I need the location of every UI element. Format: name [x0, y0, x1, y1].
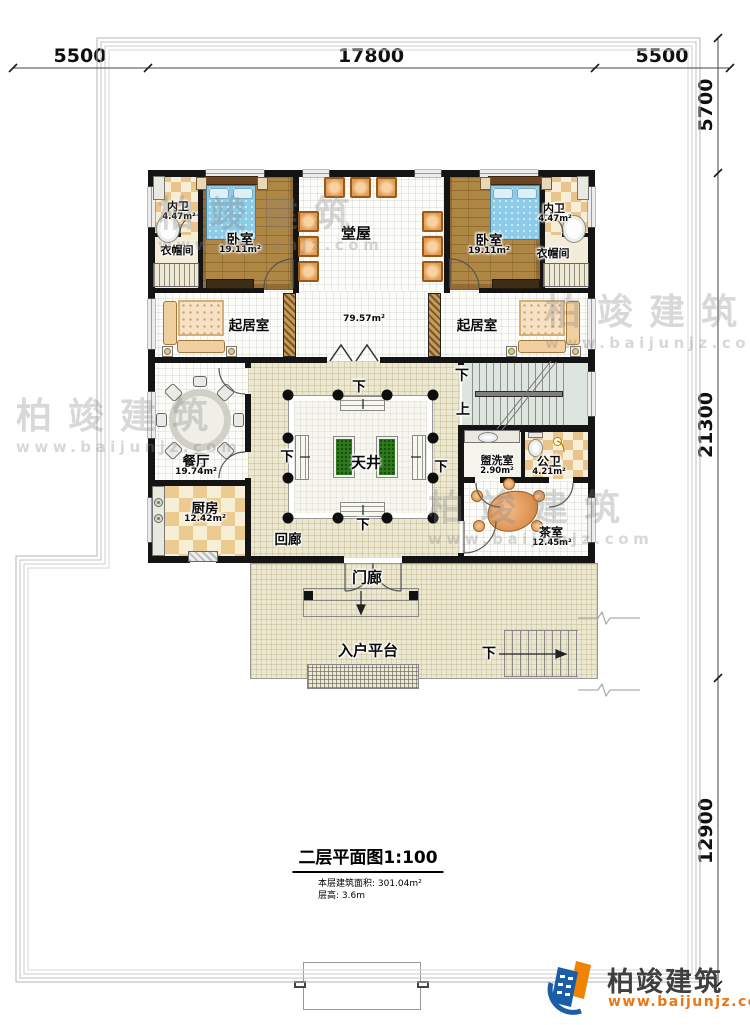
area-label-toilet: 4.21m²: [532, 467, 566, 477]
armchair: [422, 236, 443, 257]
lamp-table: [226, 346, 237, 357]
wardrobe: [543, 263, 589, 287]
wall: [148, 556, 190, 563]
stair-label-up-main: 上: [456, 399, 470, 419]
window: [588, 372, 595, 416]
column: [333, 513, 344, 524]
wall: [402, 556, 595, 563]
timber-column: [283, 293, 296, 357]
dim-right-middle: 21300: [695, 392, 717, 458]
window: [588, 498, 595, 542]
sink: [478, 432, 498, 443]
floor-plan-canvas: 5500 17800 5500 5700 21300 12900: [0, 0, 750, 1025]
wall: [245, 478, 251, 563]
stair-label-down-courtyard-left: 下: [280, 445, 294, 465]
gate: [303, 962, 421, 1010]
porch-steps: [303, 588, 419, 617]
dim-right-lower: 12900: [695, 798, 717, 864]
dim-top-left: 5500: [54, 45, 107, 67]
area-label-dining: 19.74m²: [175, 467, 217, 477]
vanity: [153, 176, 165, 200]
gate-hinge: [417, 981, 429, 988]
wall: [245, 394, 251, 452]
column: [283, 513, 294, 524]
lamp-table: [506, 346, 517, 357]
wall: [444, 170, 450, 293]
sofa: [163, 301, 177, 345]
armchair: [298, 211, 319, 232]
stool: [533, 490, 545, 502]
area-label-bedroom-right: 19.11m²: [468, 246, 510, 256]
dim-top-center: 17800: [338, 45, 404, 67]
porch-step-edge: [304, 600, 418, 601]
stove-burner: [154, 514, 163, 523]
courtyard-steps-top: [340, 396, 385, 411]
stool: [471, 490, 483, 502]
bed-headboard: [488, 176, 542, 185]
area-label-bedroom-left: 19.11m²: [219, 245, 261, 255]
plan-title: 二层平面图1:100: [292, 843, 443, 873]
column: [283, 390, 294, 401]
window: [148, 299, 155, 349]
area-label-tearoom: 12.45m²: [532, 538, 571, 548]
dresser: [206, 279, 254, 289]
armchair: [376, 177, 397, 198]
stair-handrail: [475, 391, 563, 397]
pillow: [517, 188, 537, 199]
column: [382, 390, 393, 401]
courtyard-steps-right: [412, 435, 426, 480]
wall: [216, 556, 344, 563]
column: [382, 513, 393, 524]
area-label-kitchen: 12.42m²: [184, 514, 226, 524]
gate-hinge: [294, 981, 306, 988]
pillow: [233, 188, 253, 199]
dim-right-upper: 5700: [695, 79, 717, 132]
wall: [458, 357, 464, 365]
armchair: [350, 177, 371, 198]
area-label-washroom: 2.90m²: [480, 466, 514, 476]
rug: [178, 300, 224, 336]
room-label-porch: 门廊: [352, 567, 382, 588]
window: [148, 392, 155, 438]
room-label-cloister: 回廊: [275, 528, 302, 548]
entry-stair-treads: [504, 630, 578, 677]
dresser: [492, 279, 540, 289]
column: [428, 390, 439, 401]
entry-mat-steps: [307, 664, 419, 689]
wardrobe: [153, 263, 199, 287]
armchair: [422, 261, 443, 282]
rug: [519, 300, 565, 336]
pendant-lamp: [553, 437, 562, 446]
column: [283, 473, 294, 484]
area-label-bath-left: 4.47m²: [162, 212, 196, 222]
newel-post: [409, 591, 418, 600]
room-label-living-right: 起居室: [457, 314, 498, 334]
column: [428, 433, 439, 444]
nightstand: [257, 177, 268, 190]
room-label-living-left: 起居室: [229, 314, 270, 334]
area-label-bath-right: 4.47m²: [538, 214, 572, 224]
vanity: [577, 176, 589, 200]
area-label-hall: 79.57m²: [343, 314, 385, 324]
stool: [473, 520, 485, 532]
lamp-table: [162, 346, 173, 357]
armchair: [422, 211, 443, 232]
wall: [521, 432, 525, 477]
logo-building-icon: [545, 953, 605, 1015]
timber-column: [428, 293, 441, 357]
window: [415, 170, 441, 177]
stair-label-down-courtyard-right: 下: [434, 455, 448, 475]
dining-chair: [156, 413, 167, 427]
room-label-courtyard: 天井: [351, 452, 381, 473]
room-label-platform: 入户平台: [338, 640, 398, 661]
courtyard-steps-left: [295, 435, 309, 480]
room-label-closet-right: 衣帽间: [537, 245, 570, 261]
armchair: [324, 177, 345, 198]
column: [333, 390, 344, 401]
newel-post: [304, 591, 313, 600]
kitchen-sliding-door: [188, 551, 218, 562]
dim-top-right: 5500: [636, 45, 689, 67]
armchair: [298, 261, 319, 282]
stool: [503, 478, 515, 490]
column: [428, 513, 439, 524]
bed-headboard: [204, 176, 258, 185]
room-label-closet-left: 衣帽间: [161, 242, 194, 258]
stair-label-down-courtyard-bottom: 下: [356, 513, 370, 533]
armchair: [298, 236, 319, 257]
wall: [458, 477, 475, 483]
sofa: [177, 340, 225, 353]
pillow: [493, 188, 513, 199]
window: [588, 299, 595, 349]
nightstand: [541, 177, 552, 190]
stove-burner: [154, 498, 163, 507]
room-label-hall: 堂屋: [341, 223, 371, 244]
column: [283, 433, 294, 444]
wall: [573, 477, 595, 483]
lamp-table: [570, 346, 581, 357]
sofa: [566, 301, 580, 345]
wall: [458, 553, 464, 563]
plan-height-note: 层高: 3.6m: [318, 888, 365, 901]
window: [303, 170, 329, 177]
wall: [245, 357, 251, 368]
dining-chair: [193, 376, 207, 387]
dining-chair: [233, 413, 244, 427]
logo-url: www.baijunjz.com: [608, 994, 750, 1010]
sofa: [518, 340, 566, 353]
window: [588, 187, 595, 227]
pillow: [209, 188, 229, 199]
wall: [148, 357, 327, 363]
stair-label-down-courtyard-top: 下: [352, 375, 366, 395]
stair-label-down-entry: 下: [482, 643, 496, 663]
toilet-tank: [528, 432, 543, 438]
stair-label-down-main: 下: [455, 365, 469, 385]
